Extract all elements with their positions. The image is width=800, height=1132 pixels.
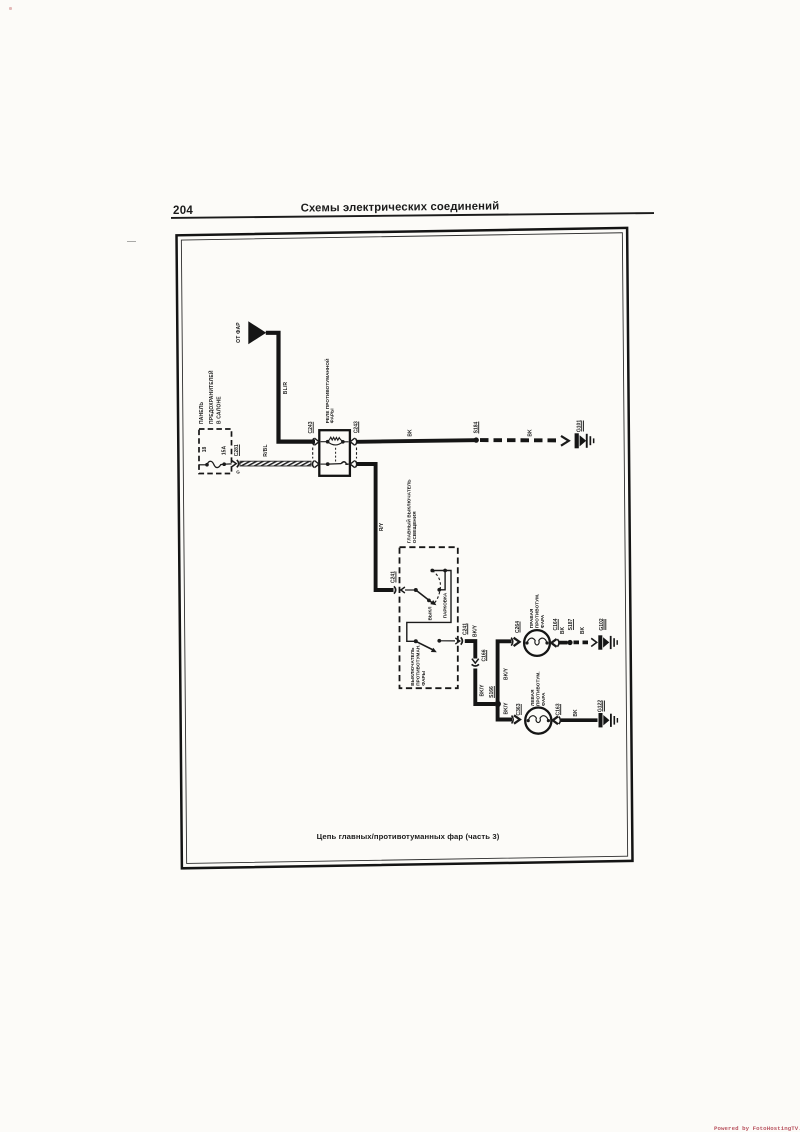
svg-text:ПРЕДОХРАНИТЕЛЕЙ: ПРЕДОХРАНИТЕЛЕЙ — [207, 370, 215, 424]
svg-text:ФАРЫ: ФАРЫ — [330, 408, 335, 423]
svg-text:ФАРА: ФАРА — [540, 614, 545, 628]
svg-text:BK: BK — [560, 627, 566, 635]
svg-text:В САЛОНЕ: В САЛОНЕ — [216, 396, 222, 424]
svg-text:R/BL: R/BL — [263, 444, 269, 456]
svg-text:ПРОТИВОТУМАН.: ПРОТИВОТУМАН. — [416, 644, 421, 685]
svg-text:18: 18 — [202, 447, 208, 453]
svg-text:G: G — [236, 470, 240, 475]
svg-text:ОТ ФАР: ОТ ФАР — [236, 322, 242, 343]
svg-text:ПРОТИВОТУМ.: ПРОТИВОТУМ. — [534, 594, 539, 629]
svg-text:BL/R: BL/R — [283, 382, 289, 395]
svg-text:BK: BK — [573, 709, 579, 717]
svg-text:BK/Y: BK/Y — [503, 667, 509, 680]
svg-text:Схемы электрических соединен: Схемы электрических соединений — [301, 200, 500, 214]
svg-text:R/Y: R/Y — [379, 522, 385, 531]
svg-text:204: 204 — [173, 205, 193, 217]
svg-text:ФАРА: ФАРА — [541, 692, 546, 706]
svg-text:ПРАВАЯ: ПРАВАЯ — [529, 609, 534, 629]
svg-text:BK/Y: BK/Y — [472, 624, 478, 637]
svg-text:Цепь главных/противотуманных ф: Цепь главных/противотуманных фар (часть … — [317, 832, 500, 841]
svg-text:ПАНЕЛЬ: ПАНЕЛЬ — [199, 402, 205, 424]
svg-text:15A: 15A — [221, 446, 227, 456]
svg-text:ВЫКЛЮЧАТЕЛЬ: ВЫКЛЮЧАТЕЛЬ — [410, 647, 415, 686]
svg-text:BK/Y: BK/Y — [479, 684, 485, 697]
svg-text:ОСВЕЩЕНИЯ: ОСВЕЩЕНИЯ — [412, 511, 417, 543]
svg-text:ГЛАВНЫЙ ВЫКЛЮЧАТЕЛЬ: ГЛАВНЫЙ ВЫКЛЮЧАТЕЛЬ — [404, 479, 411, 543]
svg-text:BK: BK — [527, 429, 533, 437]
svg-text:ВЫКЛ: ВЫКЛ — [428, 607, 433, 621]
svg-text:BK/Y: BK/Y — [503, 702, 509, 715]
svg-text:ПРОТИВОТУМ.: ПРОТИВОТУМ. — [536, 671, 541, 706]
svg-text:BK: BK — [580, 627, 586, 635]
svg-text:BK: BK — [407, 429, 413, 437]
svg-text:ПАРКОВКА: ПАРКОВКА — [443, 592, 448, 618]
svg-text:ЛЕВАЯ: ЛЕВАЯ — [530, 690, 535, 707]
svg-text:ФАРЫ: ФАРЫ — [421, 670, 426, 685]
